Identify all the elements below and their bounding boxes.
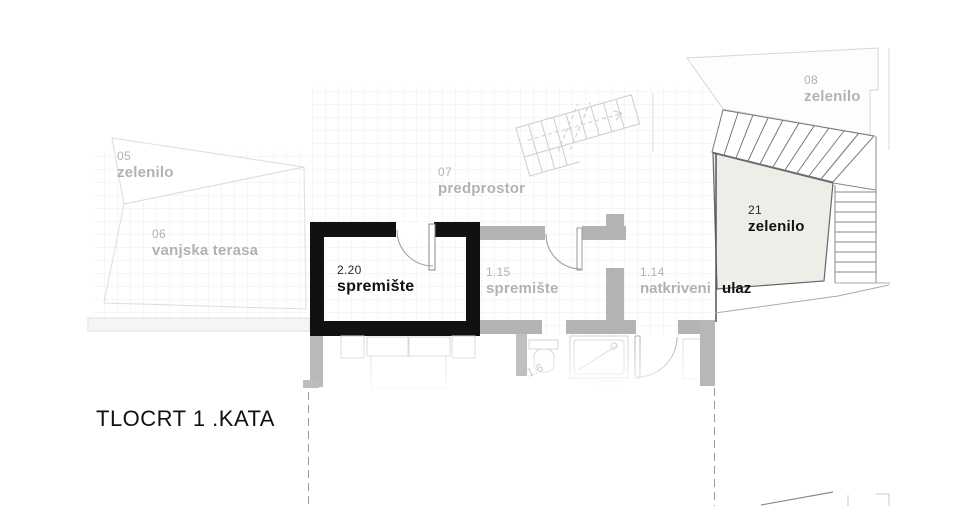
faded-left-wall [88,318,310,331]
fade-overlay [290,340,720,400]
page-title: TLOCRT 1 .KATA [96,406,275,432]
area-21-greenery [713,153,889,322]
floor-plan-page: 05 zelenilo 06 vanjska terasa 07 predpro… [0,0,960,506]
door-220-leaf [429,224,435,270]
